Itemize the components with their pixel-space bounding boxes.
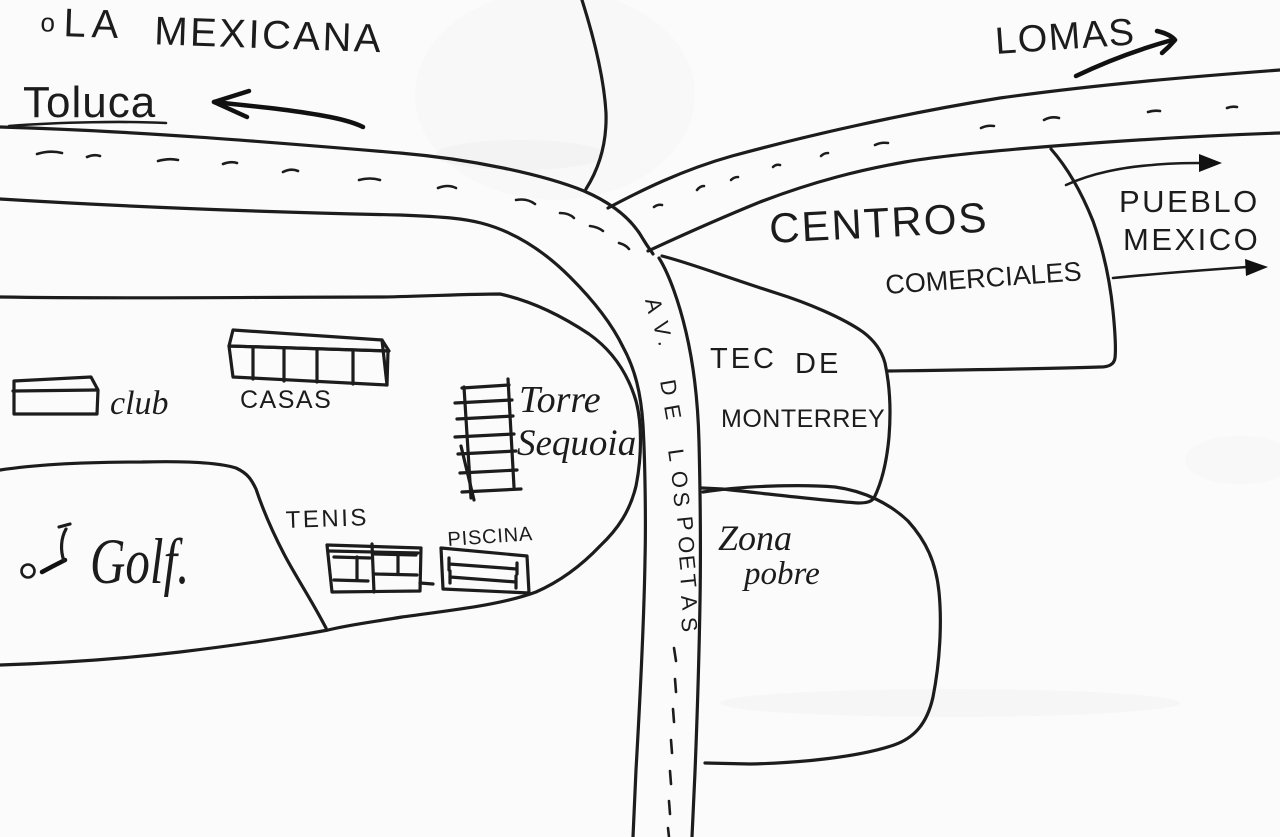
svg-text:E: E [674, 554, 700, 571]
svg-text:S: S [676, 616, 702, 633]
svg-text:MEXICO: MEXICO [1123, 222, 1260, 257]
svg-text:TEC: TEC [710, 343, 777, 375]
svg-text:A: A [676, 594, 702, 612]
svg-text:Sequoia: Sequoia [517, 423, 636, 464]
svg-text:pobre: pobre [742, 556, 820, 592]
svg-text:O: O [673, 535, 700, 555]
svg-text:club: club [110, 385, 169, 422]
svg-text:T: T [675, 573, 701, 589]
svg-text:DE: DE [795, 348, 841, 380]
svg-text:PUEBLO: PUEBLO [1119, 184, 1260, 219]
svg-text:O: O [666, 469, 693, 489]
svg-text:LA: LA [63, 1, 125, 47]
svg-text:o: o [40, 7, 56, 37]
svg-text:TENIS: TENIS [285, 504, 369, 534]
svg-text:MEXICANA: MEXICANA [154, 9, 384, 61]
svg-text:MONTERREY: MONTERREY [721, 405, 885, 433]
svg-text:Toluca: Toluca [23, 78, 156, 127]
svg-text:Zona: Zona [718, 518, 792, 558]
svg-text:Torre: Torre [519, 379, 601, 421]
svg-text:Golf.: Golf. [90, 527, 189, 598]
svg-text:P: P [672, 515, 698, 532]
svg-text:CASAS: CASAS [240, 386, 332, 414]
